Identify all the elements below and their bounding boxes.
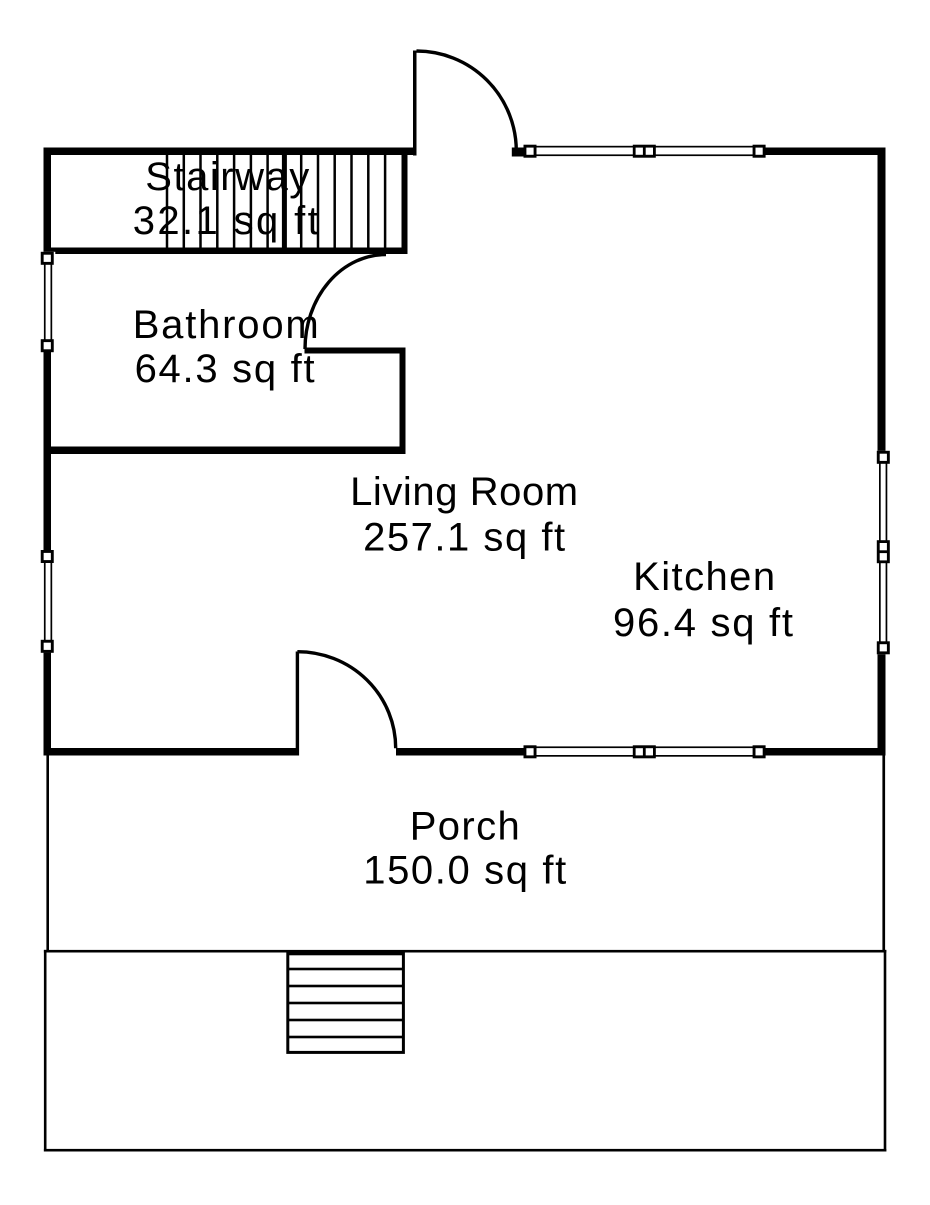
svg-text:64.3 sq ft: 64.3 sq ft [135,347,315,391]
svg-text:257.1 sq ft: 257.1 sq ft [363,515,565,559]
svg-text:150.0 sq ft: 150.0 sq ft [363,848,566,892]
svg-text:Living Room: Living Room [350,470,578,514]
svg-text:Porch: Porch [410,805,520,849]
svg-text:Stairway: Stairway [145,155,309,199]
svg-text:32.1 sq ft: 32.1 sq ft [133,199,319,243]
svg-text:Bathroom: Bathroom [133,303,319,347]
svg-text:96.4 sq ft: 96.4 sq ft [613,601,793,645]
